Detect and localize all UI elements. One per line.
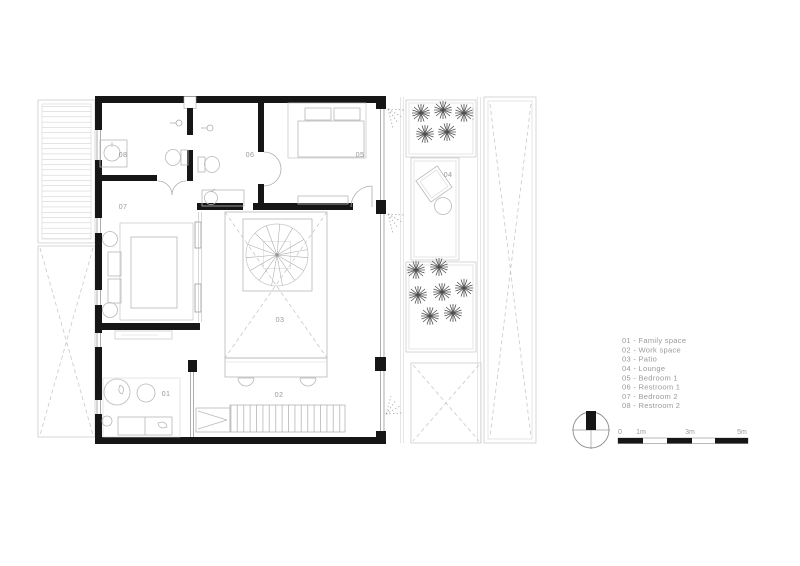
garden-strip: [401, 97, 481, 443]
pillow: [108, 279, 121, 303]
legend-item: 08 - Restroom 2: [622, 401, 680, 410]
legend: 01 - Family space 02 - Work space 03 - P…: [622, 336, 686, 410]
louver-deck: [38, 100, 95, 243]
swing-marks-bottom: [386, 396, 402, 414]
legend-item: 04 - Lounge: [622, 364, 665, 373]
mattress: [131, 237, 177, 308]
plant-icon: [438, 123, 456, 141]
legend-item: 07 - Bedroom 2: [622, 392, 678, 401]
swing-marks-top: [388, 109, 404, 128]
scale-label-1m: 1m: [636, 429, 646, 436]
patio: [199, 212, 328, 358]
pillow: [305, 108, 331, 120]
scale-label-3m: 3m: [685, 429, 695, 436]
plant-icon: [421, 307, 439, 325]
garden-roof-panel: [411, 363, 481, 443]
bedroom1-furniture: [288, 103, 366, 204]
floor-plan-drawing: 08 06 05 07 03 01 02 04 01 - Family spac…: [0, 0, 800, 566]
room-labels: 08 06 05 07 03 01 02 04: [119, 150, 453, 399]
pillow: [108, 252, 121, 276]
stool: [102, 416, 112, 426]
restroom2-fixtures: [100, 140, 188, 167]
swing-door-bedroom1: [351, 186, 372, 207]
round-table: [104, 379, 130, 405]
plant-icon: [407, 261, 425, 279]
side-table: [103, 232, 118, 247]
toilet-bowl-icon: [205, 157, 220, 173]
plant-icon: [455, 279, 473, 297]
plant-icon: [412, 104, 430, 122]
plant-icon: [430, 258, 448, 276]
planting-bed-top: [406, 100, 476, 157]
room-label-bedroom1: 05: [356, 150, 365, 159]
side-table: [103, 303, 118, 318]
wall-niche: [184, 97, 196, 109]
scale-bar: 0 1m 3m 5m: [618, 429, 748, 444]
chair: [137, 384, 155, 402]
chair: [238, 378, 254, 386]
legend-item: 01 - Family space: [622, 336, 686, 345]
mattress: [298, 121, 364, 157]
staircase: [196, 405, 345, 432]
floor-plan-page: 08 06 05 07 03 01 02 04 01 - Family spac…: [0, 0, 800, 566]
legend-item: 06 - Restroom 1: [622, 383, 680, 392]
room-label-patio: 03: [276, 315, 285, 324]
restroom1-fixtures: [198, 157, 244, 207]
sink-basin-icon: [205, 192, 218, 205]
work-space-furniture: [225, 358, 327, 386]
glass-east-wall: [381, 109, 385, 431]
room-label-restroom2: 08: [119, 150, 128, 159]
room-label-lounge: 04: [444, 170, 453, 179]
left-roof-panel: [38, 246, 95, 437]
room-label-work: 02: [275, 390, 284, 399]
bed-platform: [288, 103, 366, 158]
bedroom2-furniture: [103, 222, 202, 339]
lounge-side-table: [435, 198, 452, 215]
scale-label-0: 0: [618, 429, 622, 436]
sliding-panel: [195, 284, 201, 312]
toilet-tank: [181, 150, 188, 165]
right-roof-strip: [484, 97, 536, 443]
plant-leaf-icon: [158, 422, 167, 428]
plant-icon: [444, 304, 462, 322]
door-handle-restroom2: [170, 120, 182, 126]
toilet-tank: [198, 157, 205, 172]
north-arrow-compass-icon: [572, 411, 610, 449]
pillow: [334, 108, 360, 120]
chair: [300, 378, 316, 386]
exterior-walls: [95, 96, 386, 444]
sliding-panel: [195, 222, 201, 248]
plant-icon: [433, 283, 451, 301]
swing-marks-middle: [388, 214, 404, 233]
double-door-bedroom2: [158, 181, 186, 195]
rug-outline: [103, 378, 180, 437]
sink-basin-icon: [104, 145, 120, 161]
legend-item: 02 - Work space: [622, 345, 681, 354]
plant-icon: [416, 125, 434, 143]
work-table: [225, 358, 327, 377]
family-space-furniture: [102, 378, 180, 437]
planting-bed-bottom: [406, 258, 476, 352]
double-door-bedroom1: [264, 152, 281, 186]
plant-icon: [409, 286, 427, 304]
scale-label-5m: 5m: [737, 429, 747, 436]
legend-item: 05 - Bedroom 1: [622, 373, 678, 382]
legend-item: 03 - Patio: [622, 355, 657, 364]
room-label-bedroom2: 07: [119, 202, 128, 211]
room-label-family: 01: [162, 389, 171, 398]
room-label-restroom1: 06: [246, 150, 255, 159]
bench: [298, 196, 348, 204]
plant-icon: [434, 101, 452, 119]
door-handle-restroom1: [201, 125, 213, 131]
toilet-bowl-icon: [166, 150, 181, 166]
plant-icon: [455, 104, 473, 122]
interior-walls: [95, 96, 353, 437]
plant-leaf-icon: [119, 385, 124, 394]
